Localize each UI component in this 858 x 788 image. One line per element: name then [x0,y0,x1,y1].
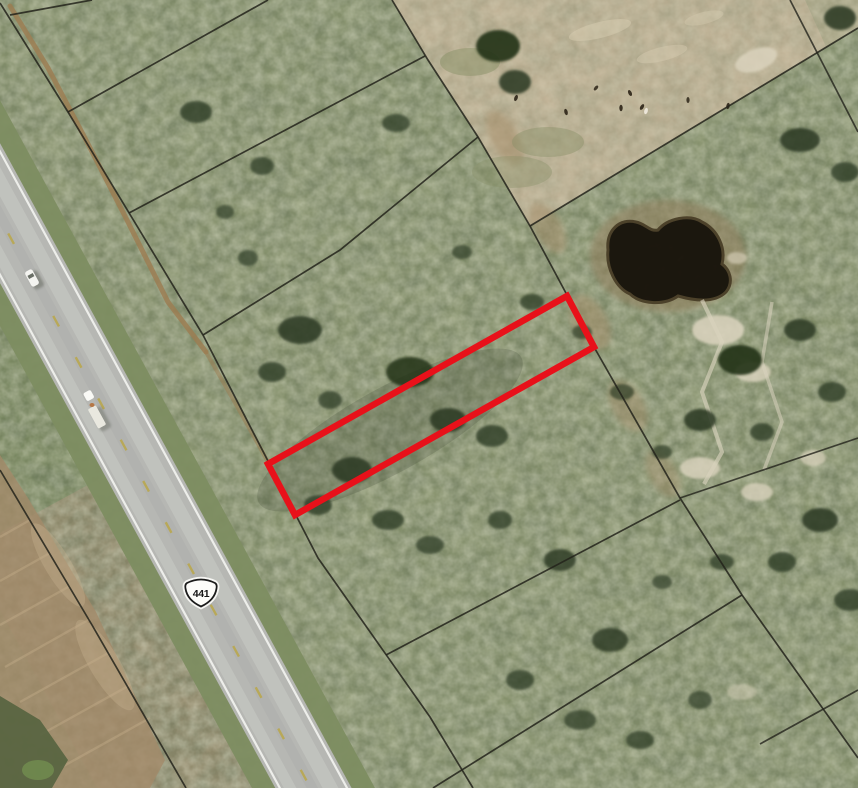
cattle-dot [619,105,622,111]
tree-cluster [318,391,342,409]
tree-cluster [718,345,762,375]
tree-cluster [824,6,856,30]
tree-cluster [544,549,576,571]
tree-cluster [382,114,410,132]
tree-cluster [452,245,472,259]
tree-cluster [250,157,274,175]
tree-cluster [416,536,444,554]
sand-patch [727,684,757,700]
tree-cluster [372,510,404,530]
tree-cluster [278,316,322,344]
aerial-map-viewport[interactable]: 441 [0,0,858,788]
tree-cluster [592,628,628,652]
sand-patch [727,252,747,264]
tree-cluster [768,552,796,572]
tree-cluster [780,128,820,152]
tree-cluster [499,70,531,94]
tree-cluster [652,575,672,589]
tree-cluster [626,731,654,749]
tree-cluster [684,409,716,431]
tree-cluster [476,30,520,62]
highway-shield-label: 441 [193,588,210,600]
sand-patch [741,483,773,501]
tree-cluster [564,710,596,730]
pasture-green-patch [472,156,552,188]
tree-cluster [258,362,286,382]
tree-cluster [831,162,858,182]
cattle-dot [686,97,689,103]
pasture-green-patch [512,127,584,157]
tree-cluster [652,445,672,459]
tree-cluster [216,205,234,219]
tree-cluster [784,319,816,341]
tree-cluster [802,508,838,532]
tree-cluster [818,382,846,402]
bottom-left-bush [22,760,54,780]
tree-cluster [476,425,508,447]
aerial-map: 441 [0,0,858,788]
tree-cluster [238,250,258,266]
vehicle-truck-load [90,403,95,407]
tree-cluster [506,670,534,690]
pond [608,218,731,303]
tree-cluster [688,691,712,709]
tree-cluster [488,511,512,529]
tree-cluster [750,423,774,441]
tree-cluster [180,101,212,123]
tree-cluster [710,554,734,570]
tree-cluster [332,457,372,483]
